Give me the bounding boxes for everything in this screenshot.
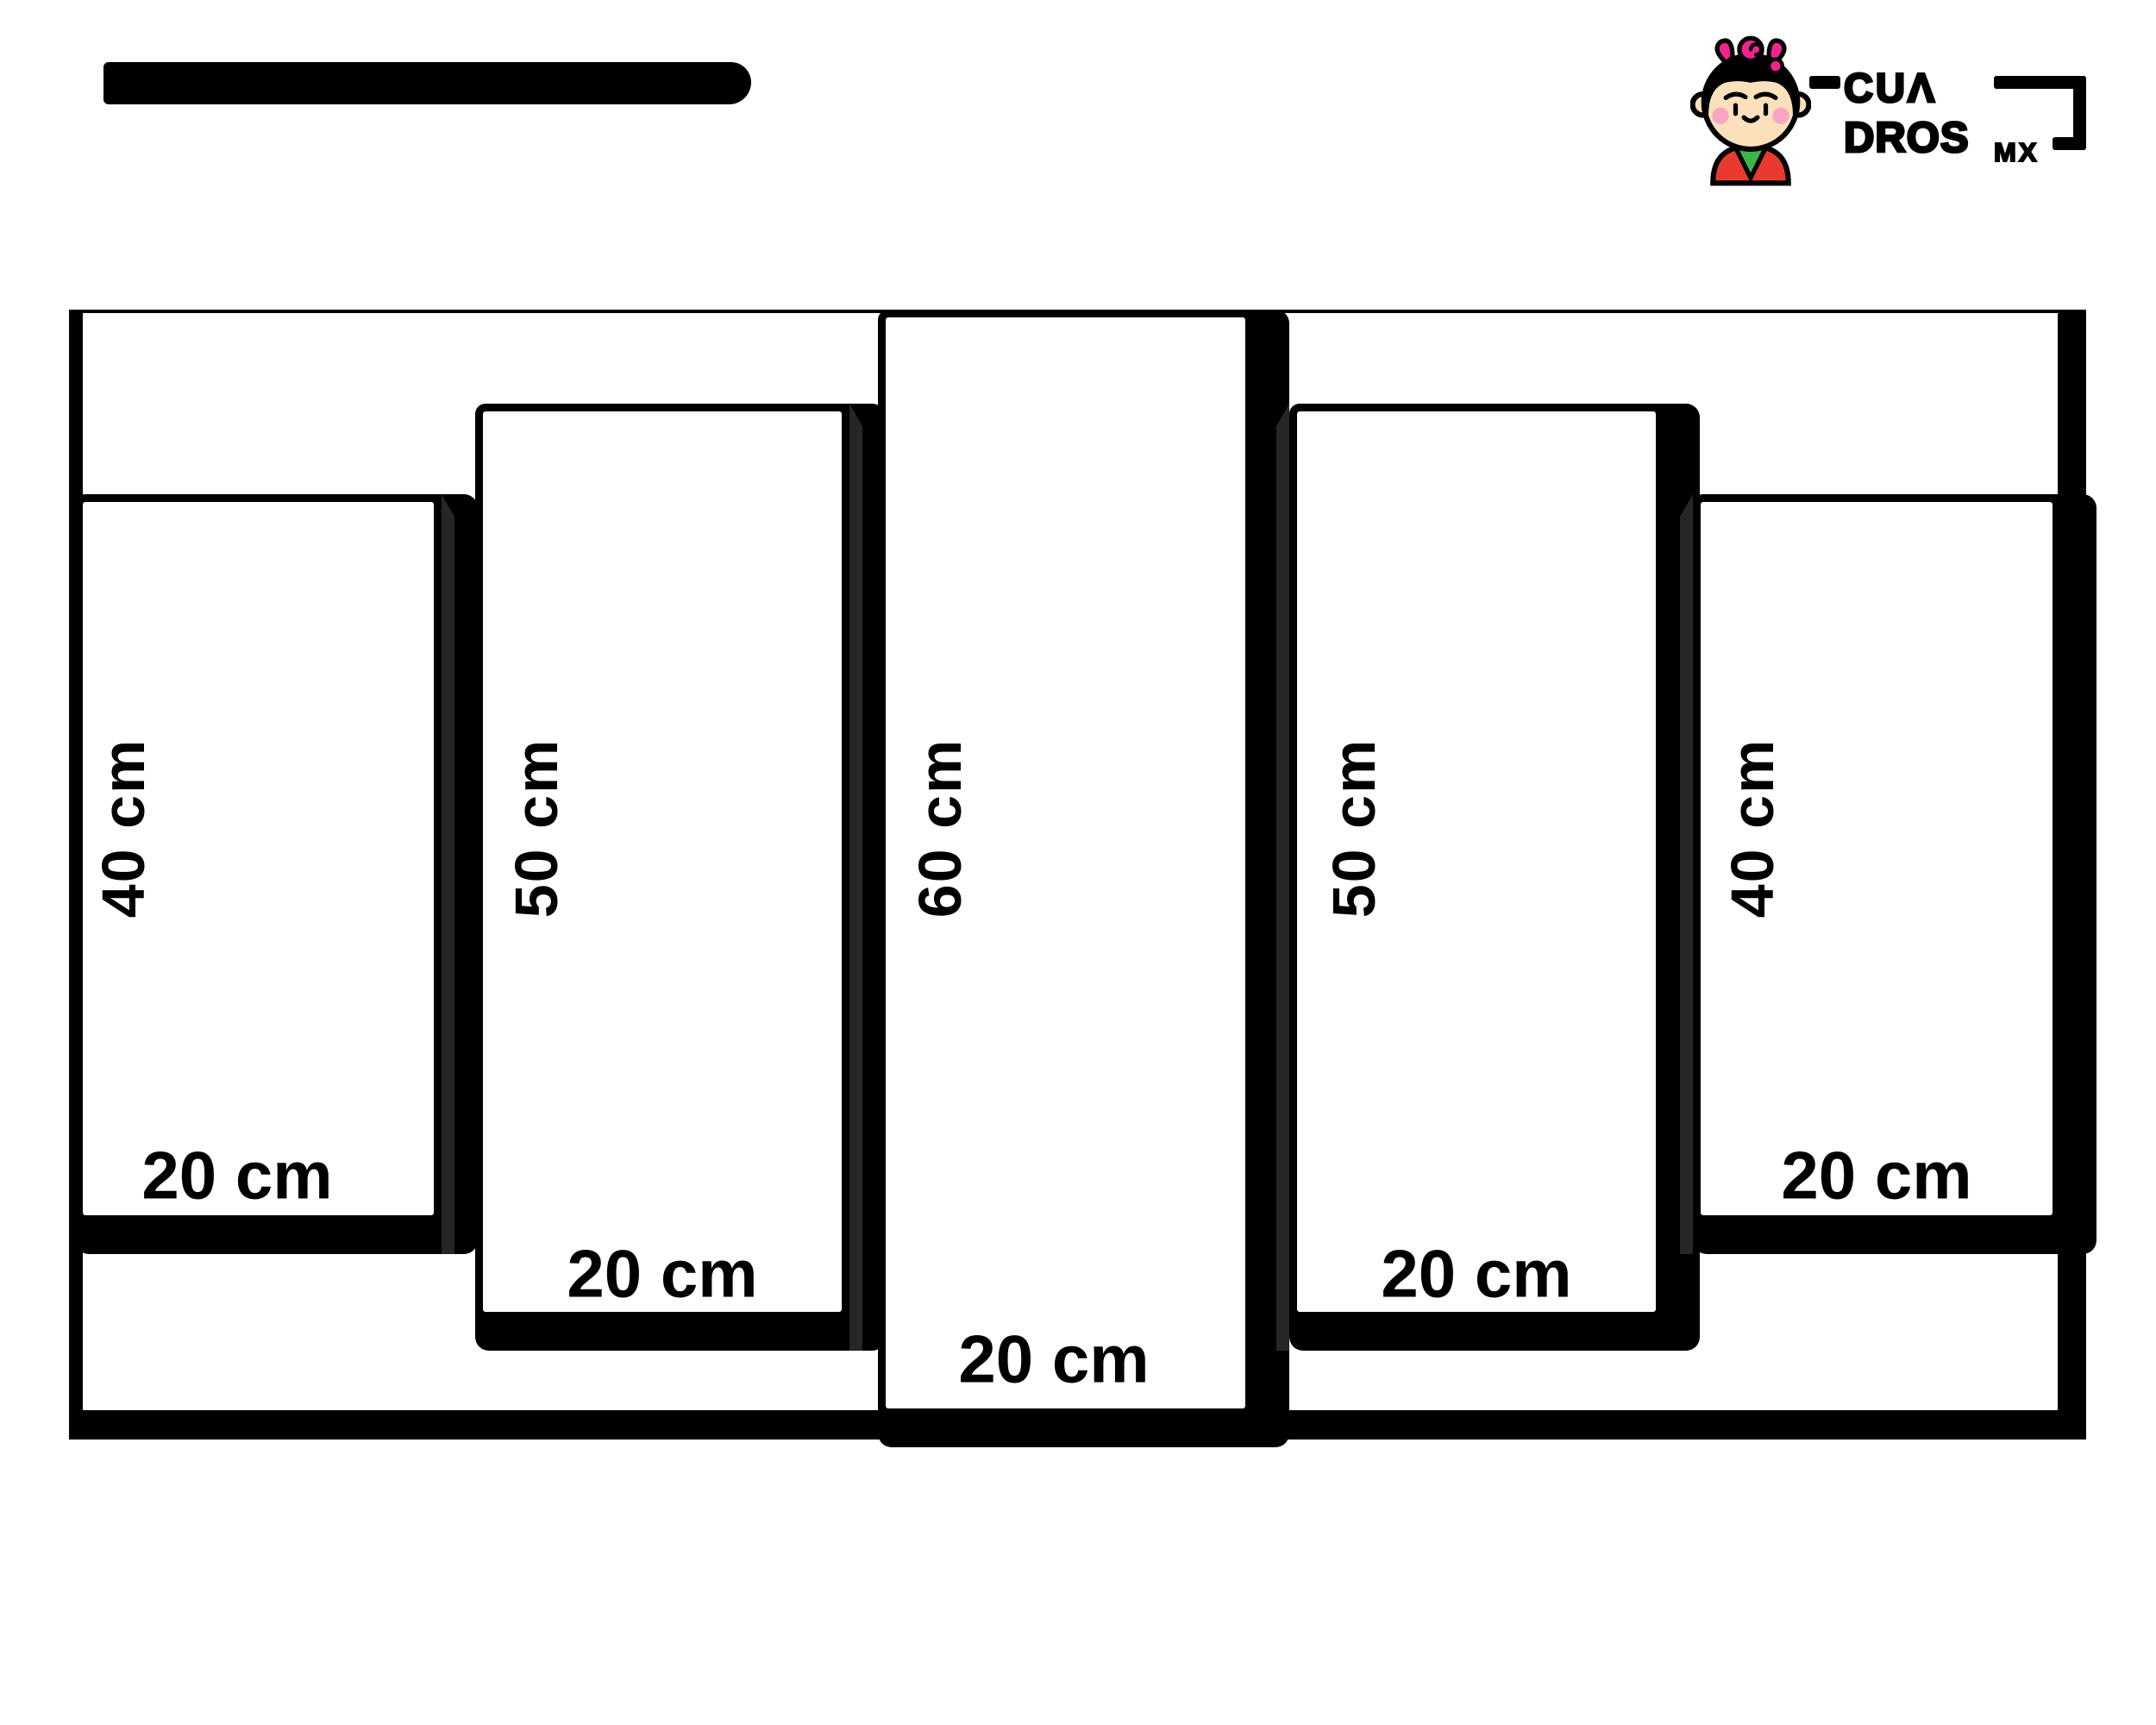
logo-frame-top-bar <box>1994 76 2086 89</box>
panel-5-side-face <box>1680 494 1693 1254</box>
panel-4-height-label: 50 cm <box>1319 738 1388 918</box>
logo-left-dash <box>1809 76 1840 89</box>
panel-4-width-label: 20 cm <box>1381 1235 1571 1314</box>
panel-1-side-face <box>442 494 454 1254</box>
panel-3-width-label: 20 cm <box>958 1320 1149 1399</box>
logo-text-dros: DROS <box>1844 117 1970 160</box>
frida-character-icon <box>1690 24 1811 188</box>
panel-1-width-label: 20 cm <box>141 1137 332 1215</box>
panel-5-width-label: 20 cm <box>1781 1137 1971 1215</box>
logo-text-cua: CUΛ <box>1844 67 1937 108</box>
canvas-dimensions-diagram: { "brand": { "full_name": "CUADROSMX", "… <box>0 0 2156 1725</box>
panel-2-width-label: 20 cm <box>567 1235 757 1314</box>
logo-frame-bottom-hook <box>2053 137 2086 150</box>
panel-5-height-label: 40 cm <box>1718 738 1787 918</box>
panel-2-side-face <box>849 404 862 1351</box>
masked-title-bar <box>103 62 751 104</box>
brand-logo: CUΛ DROS MX <box>1690 24 2091 188</box>
panel-4-side-face <box>1276 404 1289 1351</box>
panel-2-height-label: 50 cm <box>502 738 571 918</box>
panel-1-height-label: 40 cm <box>89 738 158 918</box>
logo-text-mx: MX <box>1994 139 2040 166</box>
panel-3-height-label: 60 cm <box>906 738 975 918</box>
